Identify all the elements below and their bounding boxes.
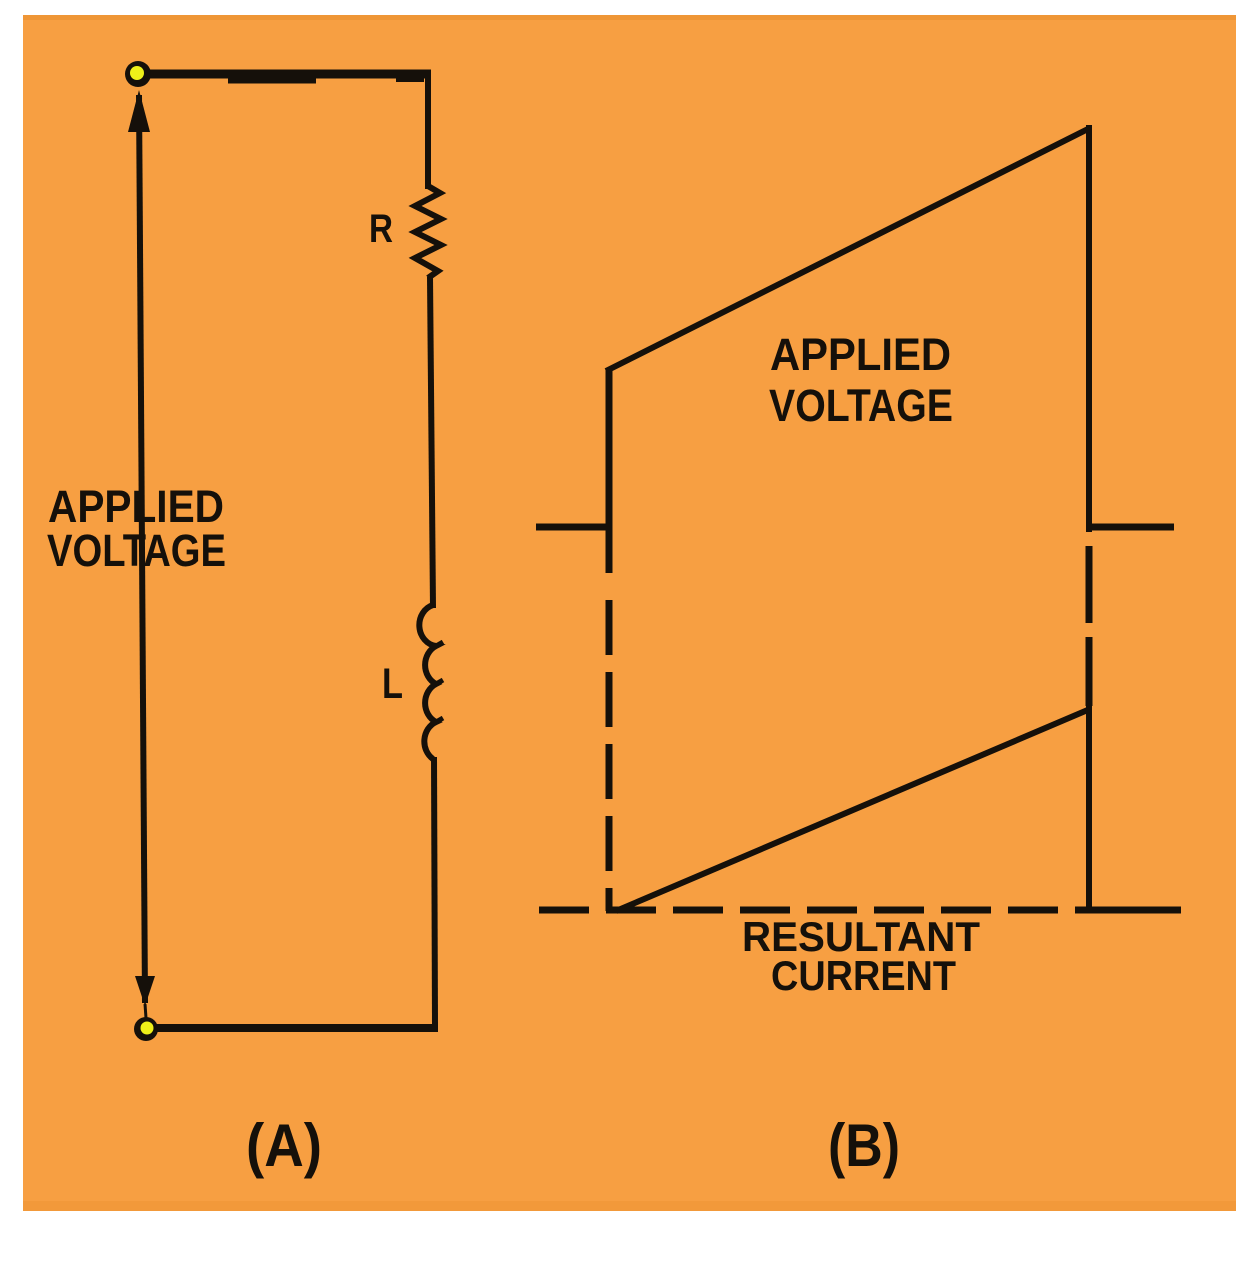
svg-text:CURRENT: CURRENT — [771, 952, 956, 999]
svg-text:(A): (A) — [246, 1112, 322, 1179]
svg-text:L: L — [382, 660, 403, 708]
svg-text:(B): (B) — [828, 1112, 900, 1179]
svg-text:VOLTAGE: VOLTAGE — [47, 525, 226, 576]
svg-text:VOLTAGE: VOLTAGE — [769, 380, 953, 431]
svg-text:R: R — [369, 207, 393, 251]
svg-text:APPLIED: APPLIED — [770, 329, 951, 380]
